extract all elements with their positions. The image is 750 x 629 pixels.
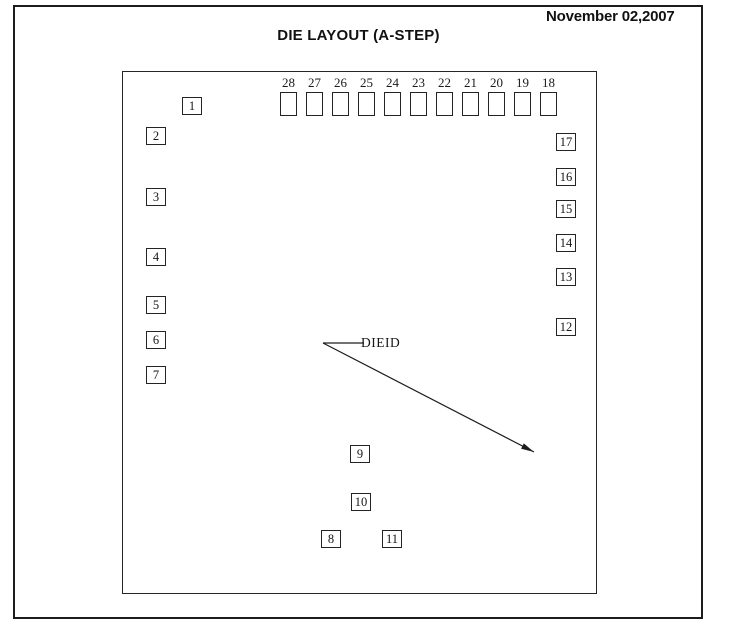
dieid-arrow-line (323, 343, 534, 452)
pad-box-3: 3 (146, 188, 166, 206)
pad-box-15: 15 (556, 200, 576, 218)
top-pad-square (280, 92, 297, 116)
arrowhead-icon (521, 443, 534, 452)
top-pad-square (332, 92, 349, 116)
pad-box-1: 1 (182, 97, 202, 115)
top-pad-square (358, 92, 375, 116)
top-pad-19: 19 (514, 75, 531, 116)
top-pad-square (436, 92, 453, 116)
dieid-label: DIEID (361, 335, 400, 351)
top-pad-23: 23 (410, 75, 427, 116)
top-pad-27: 27 (306, 75, 323, 116)
top-pad-number-label: 25 (358, 75, 375, 90)
pad-box-5: 5 (146, 296, 166, 314)
pad-box-6: 6 (146, 331, 166, 349)
dieid-callout-arrow (123, 72, 596, 593)
top-pad-22: 22 (436, 75, 453, 116)
top-pad-square (540, 92, 557, 116)
pad-box-16: 16 (556, 168, 576, 186)
top-pad-25: 25 (358, 75, 375, 116)
pad-box-10: 10 (351, 493, 371, 511)
top-pad-18: 18 (540, 75, 557, 116)
top-pad-number-label: 24 (384, 75, 401, 90)
pad-box-17: 17 (556, 133, 576, 151)
top-pad-square (462, 92, 479, 116)
pad-box-8: 8 (321, 530, 341, 548)
pad-box-7: 7 (146, 366, 166, 384)
top-pad-21: 21 (462, 75, 479, 116)
document-date: November 02,2007 (546, 8, 696, 25)
die-layout-page: November 02,2007 DIE LAYOUT (A-STEP) DIE… (0, 0, 750, 629)
top-pad-number-label: 19 (514, 75, 531, 90)
die-outline: DIEID 2827262524232221201918 12345671716… (122, 71, 597, 594)
top-pad-26: 26 (332, 75, 349, 116)
top-pad-square (514, 92, 531, 116)
pad-box-4: 4 (146, 248, 166, 266)
top-pad-square (488, 92, 505, 116)
top-pad-number-label: 26 (332, 75, 349, 90)
top-pad-square (410, 92, 427, 116)
top-pad-square (384, 92, 401, 116)
top-pad-24: 24 (384, 75, 401, 116)
top-pad-number-label: 20 (488, 75, 505, 90)
top-pad-number-label: 21 (462, 75, 479, 90)
pad-box-11: 11 (382, 530, 402, 548)
pad-box-14: 14 (556, 234, 576, 252)
page-title: DIE LAYOUT (A-STEP) (122, 27, 595, 44)
pad-box-2: 2 (146, 127, 166, 145)
pad-box-13: 13 (556, 268, 576, 286)
top-pad-number-label: 23 (410, 75, 427, 90)
top-pad-number-label: 18 (540, 75, 557, 90)
pad-box-12: 12 (556, 318, 576, 336)
top-pad-number-label: 28 (280, 75, 297, 90)
top-pad-number-label: 27 (306, 75, 323, 90)
pad-box-9: 9 (350, 445, 370, 463)
top-pad-28: 28 (280, 75, 297, 116)
top-pad-20: 20 (488, 75, 505, 116)
top-pad-number-label: 22 (436, 75, 453, 90)
top-pad-square (306, 92, 323, 116)
